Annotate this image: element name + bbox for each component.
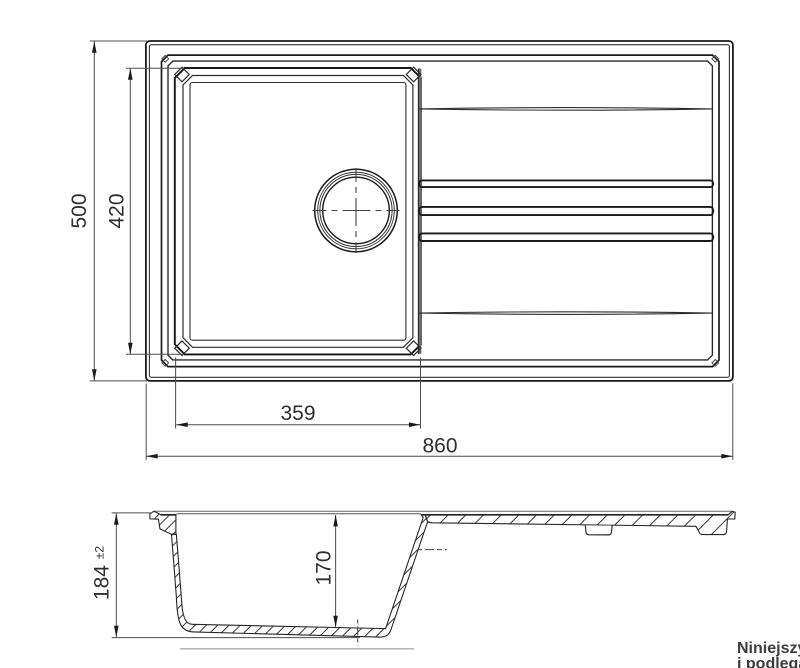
svg-text:Niniejszy rysunek: Niniejszy rysunek [737,640,800,657]
svg-text:500: 500 [68,193,91,228]
svg-text:170: 170 [313,550,336,585]
svg-text:359: 359 [280,402,315,425]
svg-text:860: 860 [422,435,457,458]
svg-text:i podlega ochronie: i podlega ochronie [737,656,800,668]
svg-text:420: 420 [106,193,129,228]
